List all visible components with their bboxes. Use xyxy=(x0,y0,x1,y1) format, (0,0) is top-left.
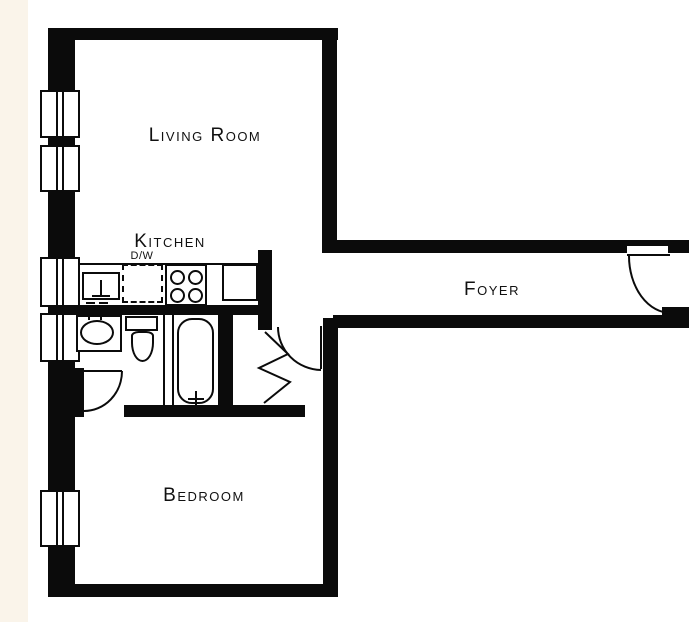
vanity-sink-basin xyxy=(80,320,114,345)
wall-bathroom-door-jamb xyxy=(72,368,84,417)
wall-tub-right xyxy=(218,313,233,417)
window-bedroom xyxy=(40,490,80,547)
entry-door-recess xyxy=(627,246,668,254)
dishwasher-label: D/W xyxy=(131,251,154,262)
window-pane xyxy=(62,492,64,545)
bathroom-door-arc xyxy=(84,371,122,411)
wall-left-window-separator xyxy=(48,138,75,145)
floor-plan: Living Room Kitchen D/W Foyer Bedroom xyxy=(0,0,695,622)
dishwasher xyxy=(122,264,163,303)
window-pane xyxy=(62,259,64,305)
wall-tub-alcove-separator xyxy=(163,315,174,405)
window-living-room-1 xyxy=(40,90,80,138)
stove-burner xyxy=(170,288,185,303)
window-pane xyxy=(56,315,58,360)
window-pane xyxy=(62,315,64,360)
living-room-label: Living Room xyxy=(149,126,262,145)
wall-bathroom-bottom xyxy=(124,405,305,417)
window-kitchen xyxy=(40,257,80,307)
wall-living-room-right xyxy=(322,28,337,253)
page-margin xyxy=(0,0,28,622)
wall-left-mid xyxy=(48,192,75,257)
bathtub xyxy=(177,318,214,404)
window-pane xyxy=(56,492,58,545)
accordion-closet-door xyxy=(259,332,290,403)
window-pane xyxy=(56,147,58,190)
kitchen-sink xyxy=(82,272,120,300)
kitchen-label: Kitchen xyxy=(134,232,206,251)
foyer-label: Foyer xyxy=(464,280,520,299)
wall-foyer-bottom xyxy=(333,315,689,328)
entry-door-latch-stub xyxy=(662,307,689,317)
toilet-bowl xyxy=(131,331,154,362)
toilet-tank xyxy=(125,316,158,331)
entry-door-head xyxy=(627,254,670,256)
window-pane xyxy=(62,147,64,190)
stove-burner xyxy=(188,270,203,285)
base-cabinet xyxy=(222,264,258,301)
window-bathroom xyxy=(40,313,80,362)
window-pane xyxy=(62,92,64,136)
entry-door-arc xyxy=(629,256,671,313)
bedroom-label: Bedroom xyxy=(163,486,245,505)
wall-left-lower xyxy=(48,362,75,490)
kitchen-counter-edge xyxy=(78,263,258,265)
hall-door-arc xyxy=(278,327,321,370)
stove-burner xyxy=(170,270,185,285)
wall-bedroom-right xyxy=(323,318,338,597)
wall-kitchen-right xyxy=(258,250,272,330)
wall-top xyxy=(48,28,338,40)
stove-burner xyxy=(188,288,203,303)
window-pane xyxy=(56,259,58,305)
stove xyxy=(165,264,207,306)
wall-bottom xyxy=(48,584,338,597)
window-living-room-2 xyxy=(40,145,80,192)
window-pane xyxy=(56,92,58,136)
wall-bathroom-top xyxy=(75,305,272,315)
